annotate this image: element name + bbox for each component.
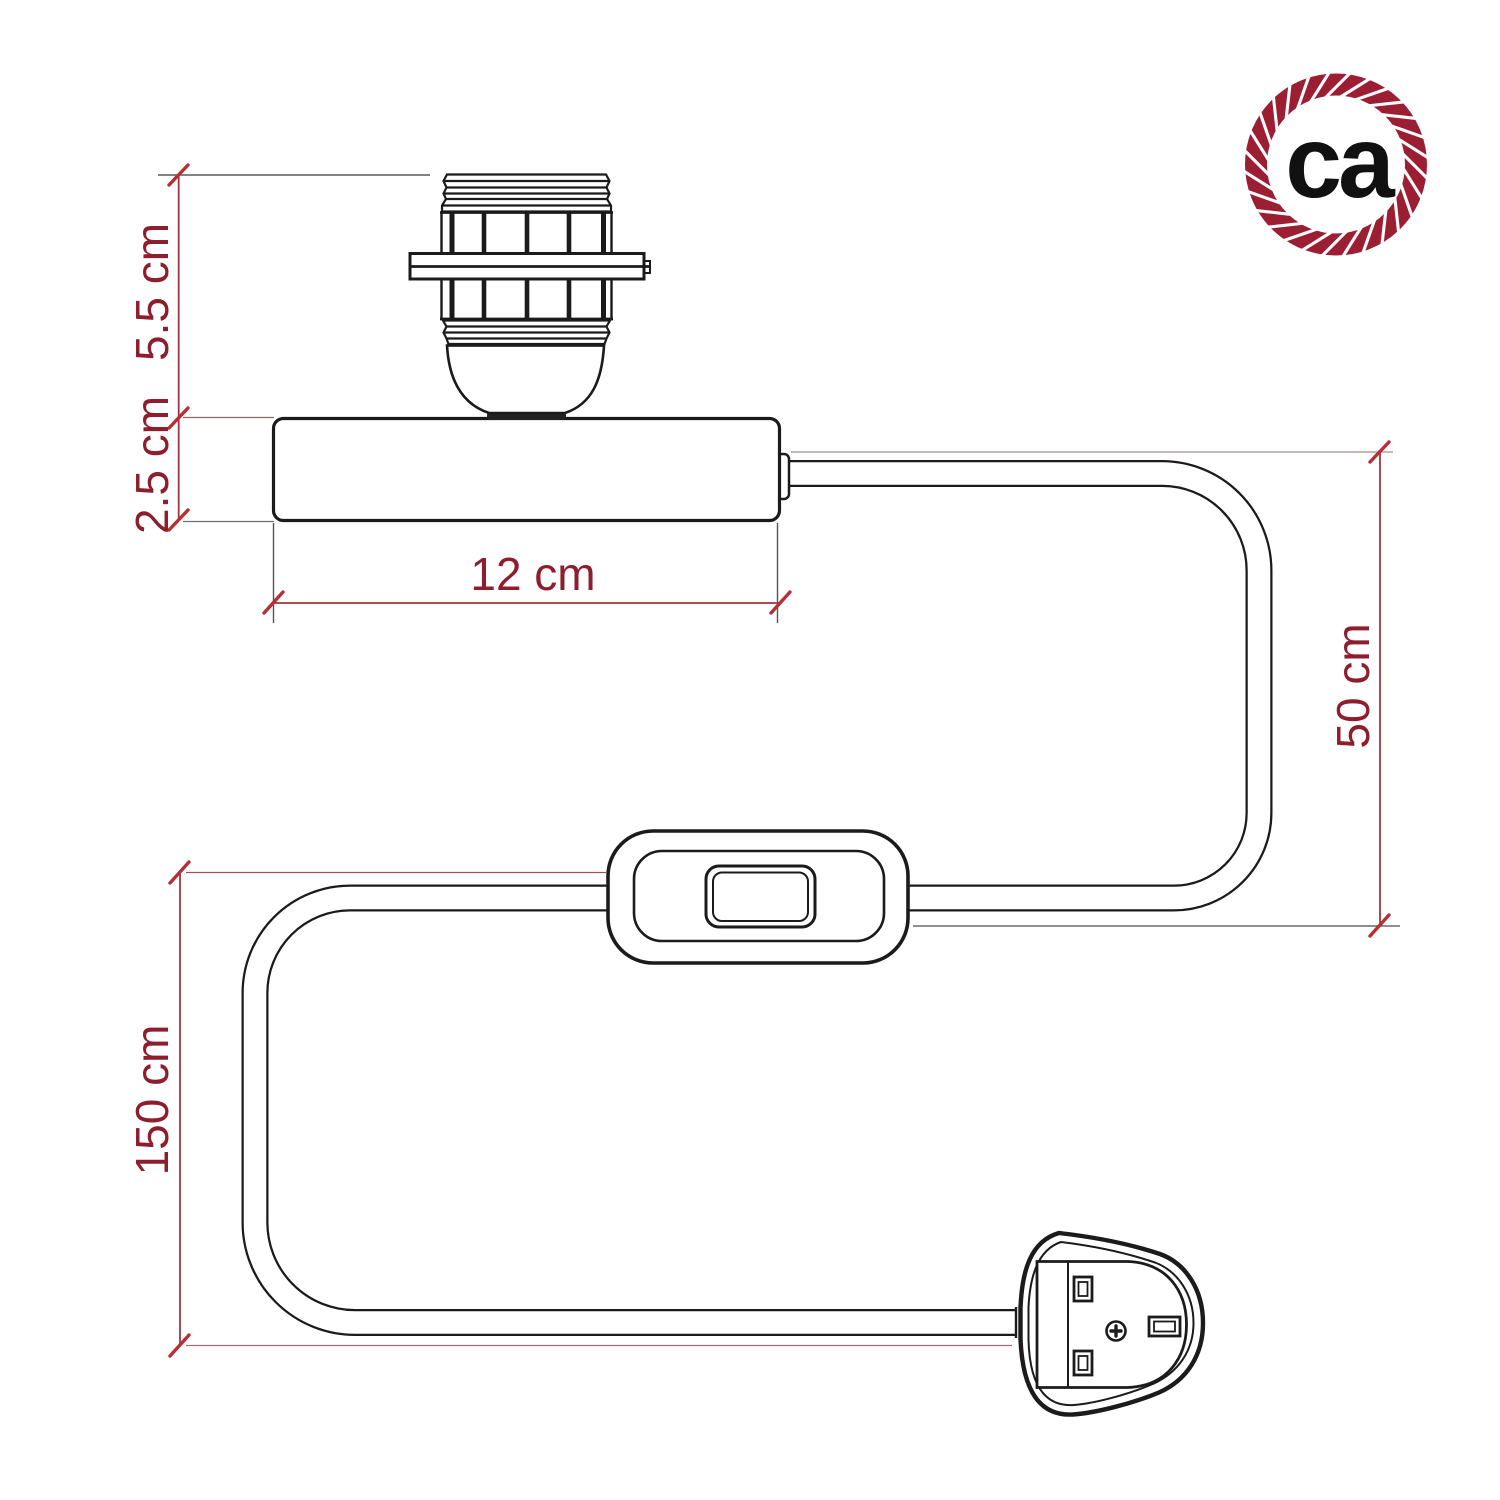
svg-text:ca: ca xyxy=(1285,105,1396,219)
svg-text:2.5 cm: 2.5 cm xyxy=(126,396,178,534)
svg-text:5.5 cm: 5.5 cm xyxy=(126,223,178,361)
svg-text:50 cm: 50 cm xyxy=(1327,623,1379,748)
svg-text:12 cm: 12 cm xyxy=(470,548,595,600)
svg-text:150 cm: 150 cm xyxy=(126,1025,178,1176)
